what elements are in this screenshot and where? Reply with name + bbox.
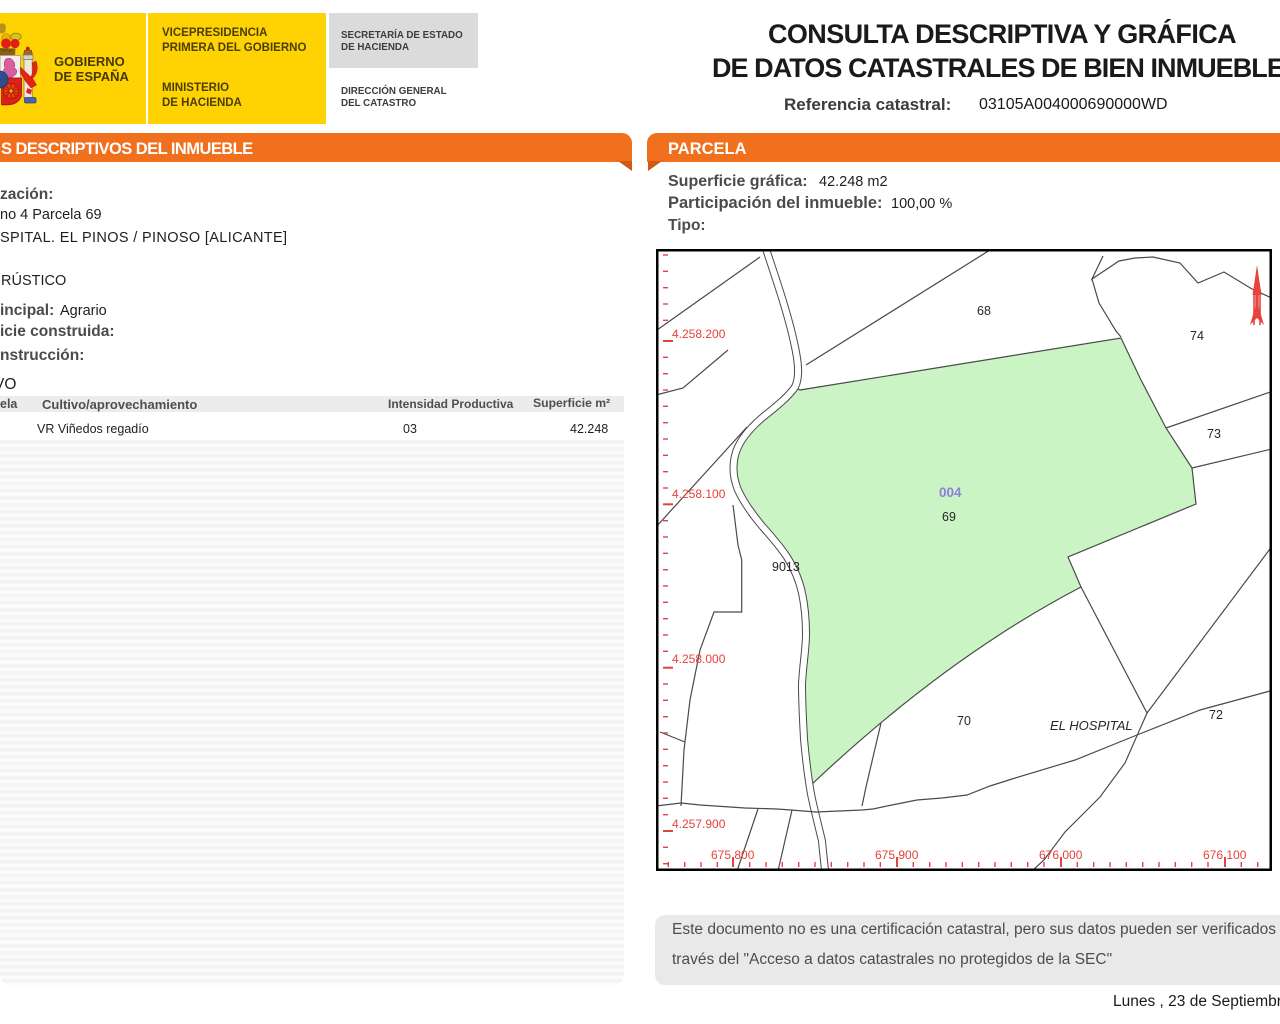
svg-text:004: 004 (939, 485, 962, 500)
svg-text:68: 68 (977, 304, 991, 318)
svg-text:676.100: 676.100 (1203, 848, 1247, 862)
svg-text:69: 69 (942, 510, 956, 524)
svg-text:4.258.000: 4.258.000 (672, 652, 726, 666)
svg-text:72: 72 (1209, 708, 1223, 722)
svg-text:4.258.100: 4.258.100 (672, 487, 726, 501)
svg-text:4.258.200: 4.258.200 (672, 327, 726, 341)
svg-text:73: 73 (1207, 427, 1221, 441)
svg-text:EL HOSPITAL: EL HOSPITAL (1050, 718, 1133, 733)
svg-text:676.000: 676.000 (1039, 848, 1083, 862)
svg-text:675.800: 675.800 (711, 848, 755, 862)
svg-text:74: 74 (1190, 329, 1204, 343)
svg-text:4.257.900: 4.257.900 (672, 817, 726, 831)
svg-text:70: 70 (957, 714, 971, 728)
svg-text:9013: 9013 (772, 560, 800, 574)
svg-text:675.900: 675.900 (875, 848, 919, 862)
